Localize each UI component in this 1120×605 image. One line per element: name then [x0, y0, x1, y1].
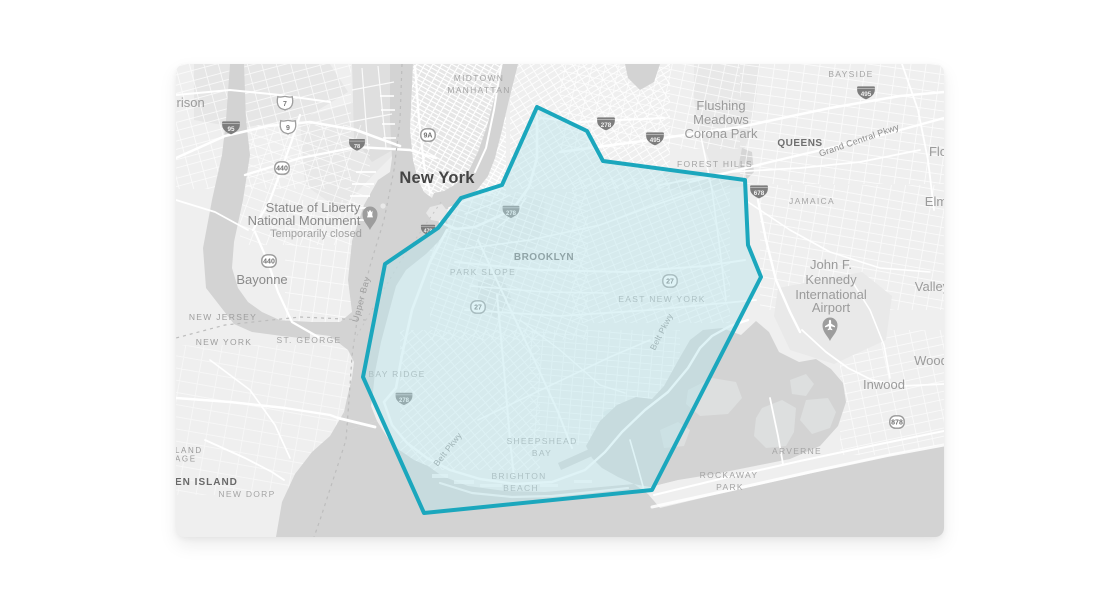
svg-text:NEW YORK: NEW YORK [196, 337, 253, 347]
svg-text:FOREST HILLS: FOREST HILLS [677, 159, 753, 169]
svg-text:Elm: Elm [925, 194, 944, 209]
svg-text:440: 440 [276, 166, 288, 173]
svg-text:95: 95 [227, 126, 235, 133]
svg-text:MANHATTAN: MANHATTAN [447, 85, 510, 95]
svg-text:7: 7 [283, 101, 287, 108]
svg-text:78: 78 [354, 144, 360, 150]
svg-text:John F.: John F. [810, 257, 852, 272]
svg-text:Bayonne: Bayonne [236, 272, 287, 287]
svg-text:QUEENS: QUEENS [777, 138, 822, 149]
svg-text:Flo: Flo [929, 144, 944, 159]
svg-text:9: 9 [286, 125, 290, 132]
svg-text:MIDTOWN: MIDTOWN [454, 73, 505, 83]
svg-text:878: 878 [891, 420, 903, 427]
svg-text:ARVERNE: ARVERNE [772, 446, 822, 456]
svg-text:Meadows: Meadows [693, 112, 749, 127]
svg-text:278: 278 [601, 122, 612, 129]
svg-text:EN ISLAND: EN ISLAND [176, 477, 238, 488]
svg-text:NEW DORP: NEW DORP [218, 489, 275, 499]
svg-text:PARK: PARK [716, 482, 744, 492]
svg-text:NEW JERSEY: NEW JERSEY [189, 312, 257, 322]
svg-text:JAMAICA: JAMAICA [789, 196, 835, 206]
svg-text:BAYSIDE: BAYSIDE [828, 69, 873, 79]
svg-text:Wood: Wood [914, 353, 944, 368]
svg-text:9A: 9A [424, 133, 433, 140]
svg-text:ROCKAWAY: ROCKAWAY [700, 470, 759, 480]
svg-text:National Monument: National Monument [248, 213, 361, 228]
svg-text:Valley: Valley [915, 279, 944, 294]
svg-text:AGE: AGE [176, 455, 197, 464]
svg-text:Inwood: Inwood [863, 377, 905, 392]
svg-text:Temporarily closed: Temporarily closed [270, 228, 362, 240]
svg-text:Corona Park: Corona Park [685, 126, 758, 141]
svg-text:678: 678 [754, 190, 765, 197]
svg-text:rison: rison [177, 95, 205, 110]
svg-text:Flushing: Flushing [696, 98, 745, 113]
svg-text:440: 440 [263, 259, 275, 266]
svg-text:495: 495 [650, 137, 661, 144]
svg-text:ST. GEORGE: ST. GEORGE [277, 335, 342, 345]
svg-text:New York: New York [399, 169, 475, 187]
svg-text:495: 495 [861, 91, 872, 98]
svg-text:Airport: Airport [812, 300, 851, 315]
svg-text:Kennedy: Kennedy [805, 272, 857, 287]
